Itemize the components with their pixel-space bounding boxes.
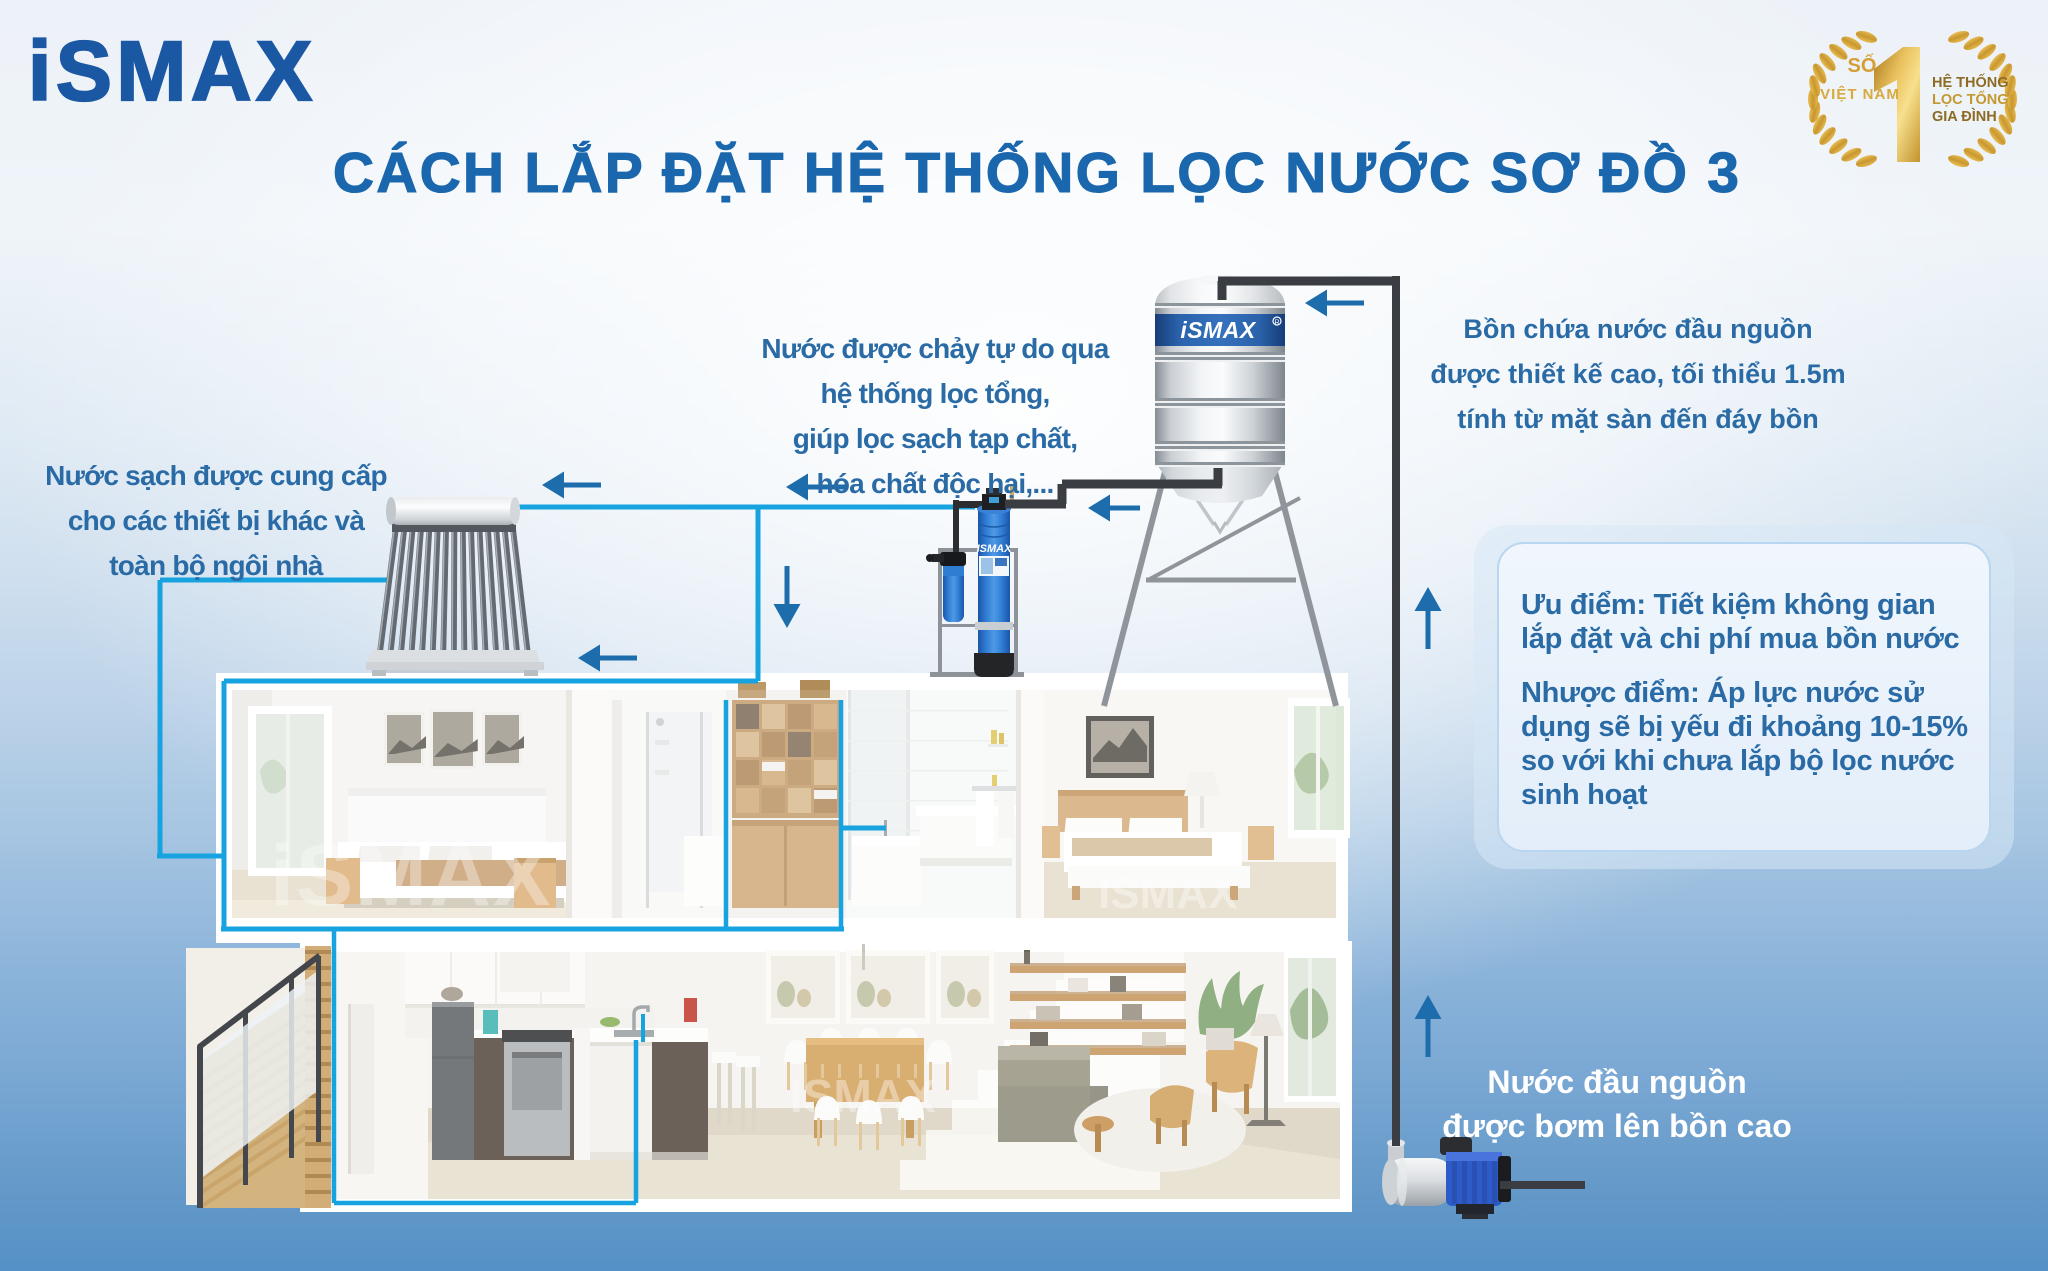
svg-text:Bồn chứa nước đầu nguồnđược th: Bồn chứa nước đầu nguồnđược thiết kế cao… [1430,314,1845,434]
svg-text:R: R [1274,320,1279,327]
svg-text:iSMAX: iSMAX [28,24,317,118]
svg-text:ISMAX: ISMAX [977,543,1013,555]
svg-text:CÁCH LẮP ĐẶT HỆ THỐNG LỌC NƯỚC: CÁCH LẮP ĐẶT HỆ THỐNG LỌC NƯỚC SƠ ĐỒ 3 [333,140,1741,205]
svg-text:iSMAX: iSMAX [1180,317,1257,343]
svg-text:GIA ĐÌNH: GIA ĐÌNH [1932,108,1997,125]
svg-text:VIỆT NAM: VIỆT NAM [1820,85,1900,103]
svg-text:HỆ THỐNG: HỆ THỐNG [1932,73,2009,91]
svg-text:LỌC TỔNG: LỌC TỔNG [1932,90,2009,108]
svg-text:SỐ: SỐ [1848,53,1877,77]
